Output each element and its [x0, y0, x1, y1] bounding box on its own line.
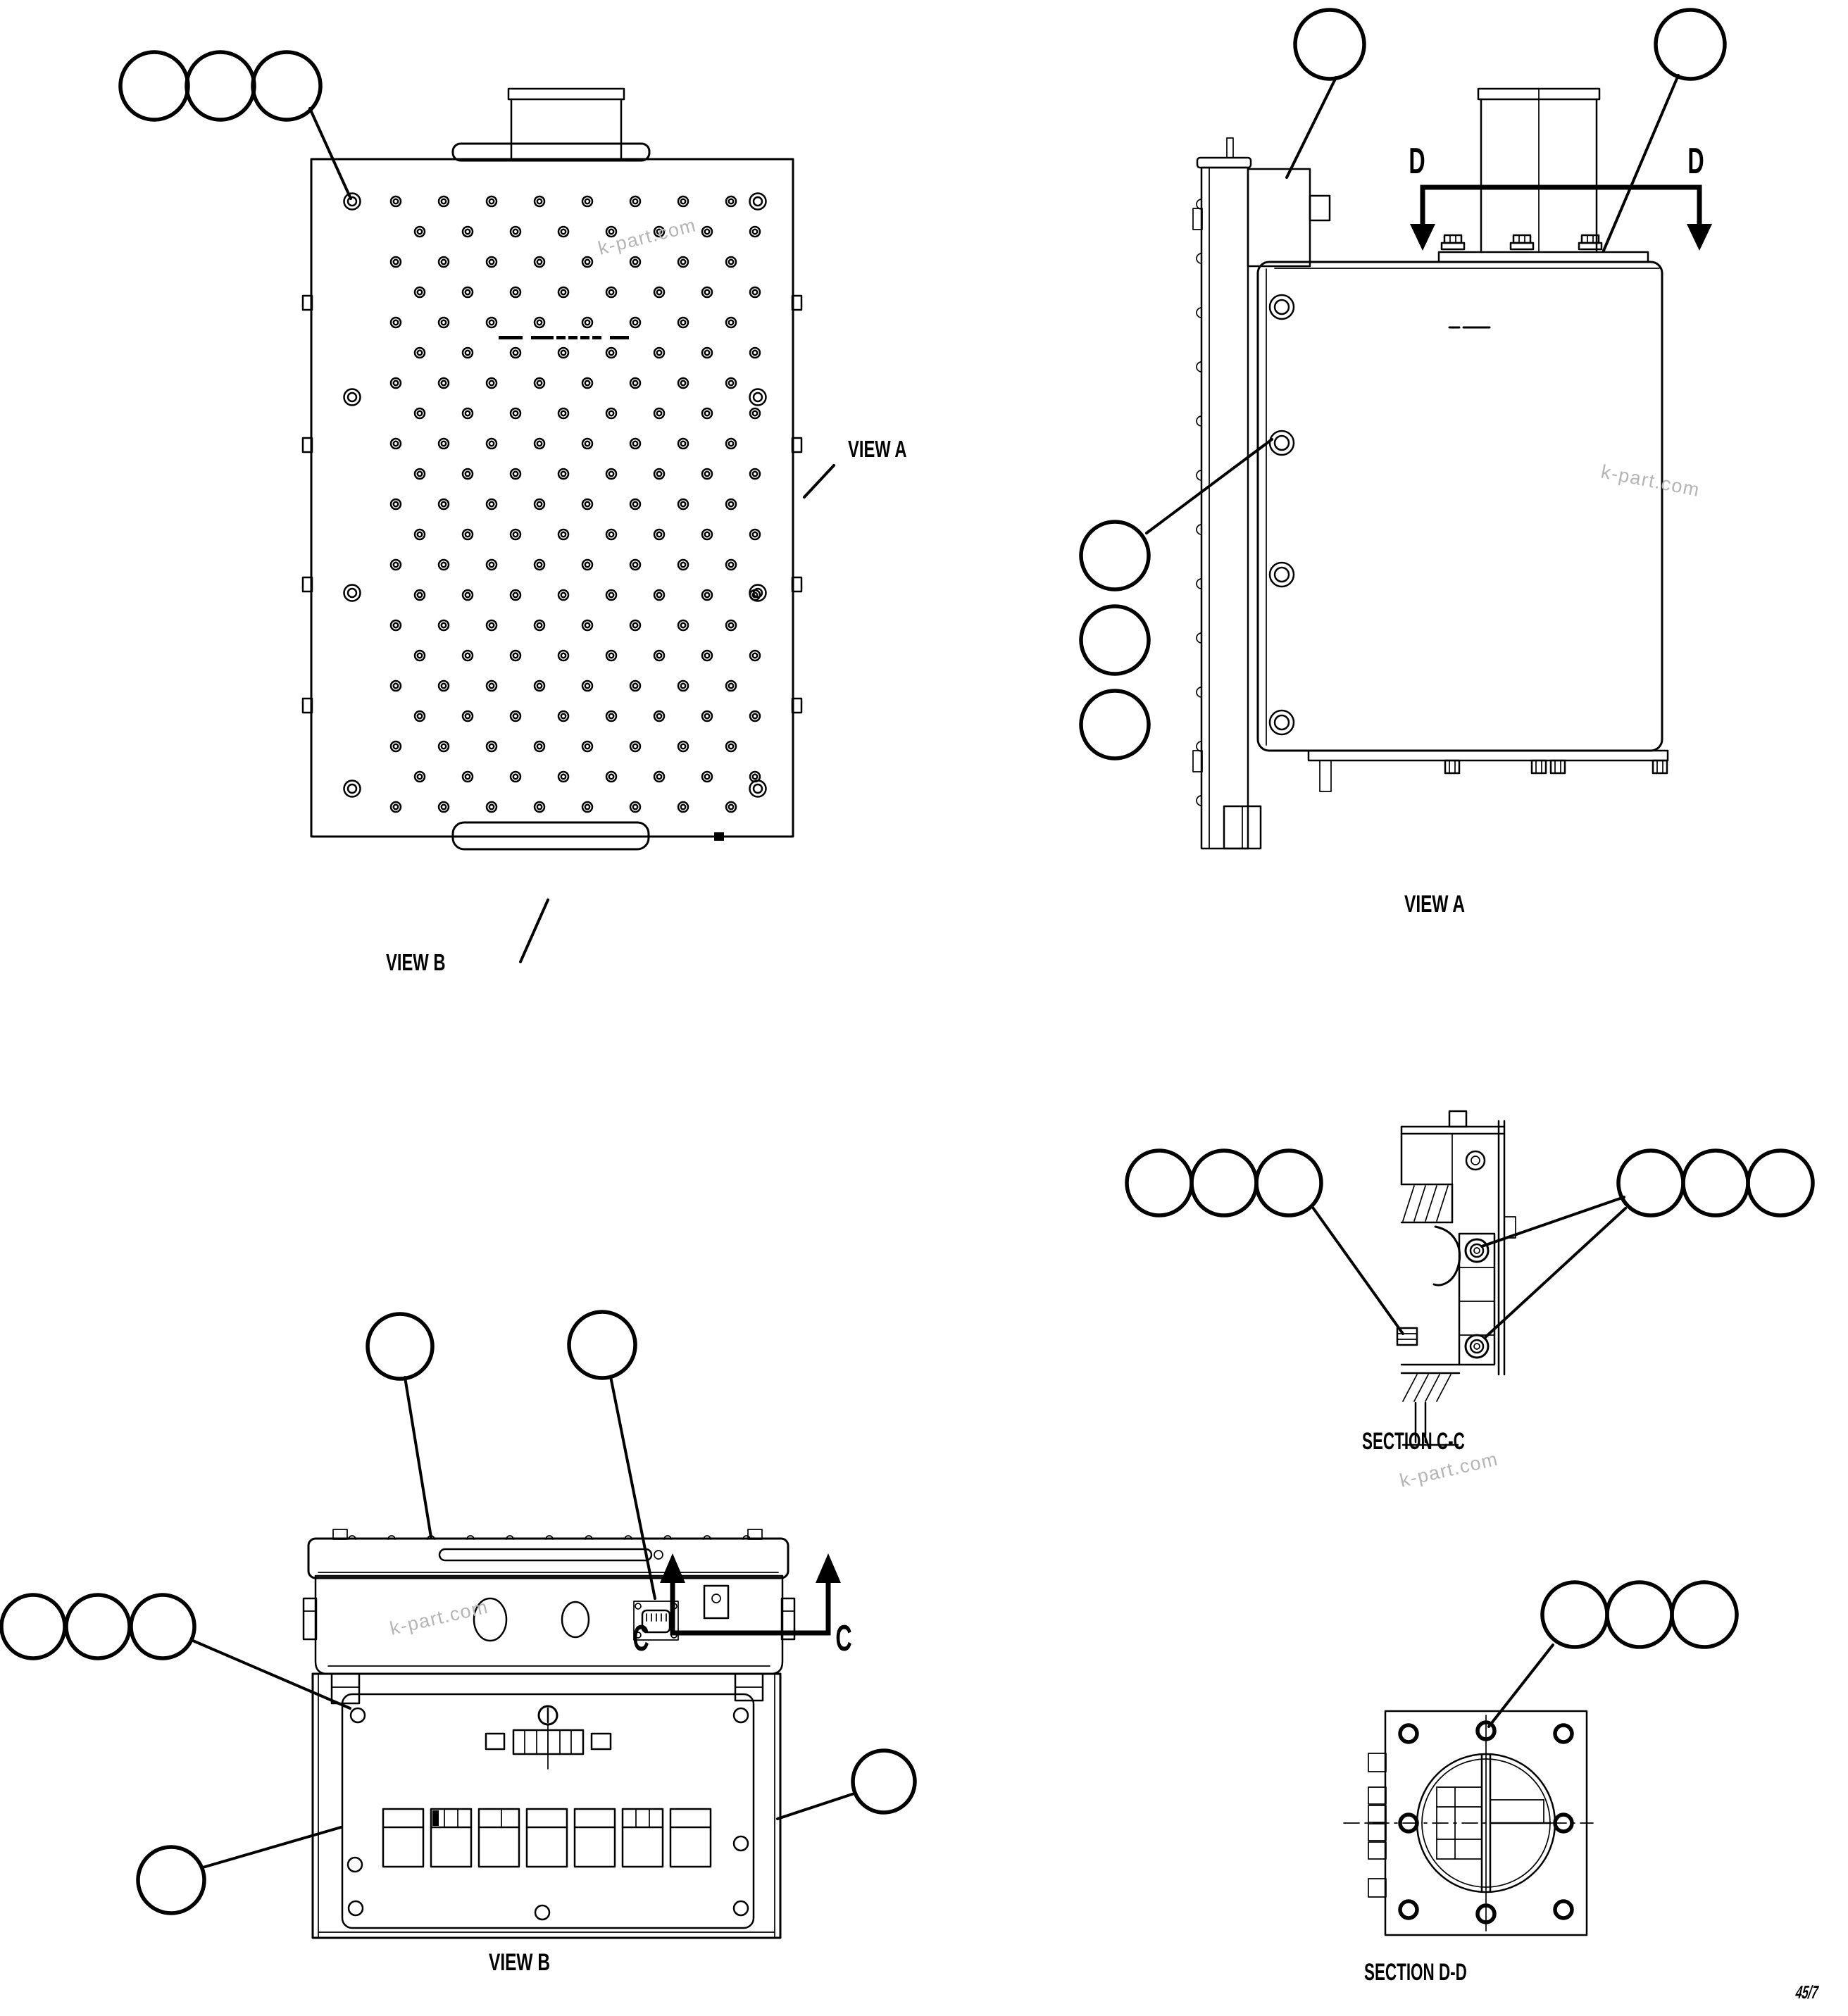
view-b: [304, 1529, 794, 1938]
watermark-text: k-part.com: [388, 1596, 491, 1639]
callout-balloon: [1127, 1151, 1192, 1215]
section-dd-caption: SECTION D-D: [1364, 1959, 1467, 1986]
callout-balloon: [853, 1751, 915, 1812]
box-feet: [1445, 760, 1667, 773]
callout-balloon: [120, 52, 188, 120]
section-dd: SECTION D-D: [1344, 1711, 1593, 1986]
view-b-pointer: VIEW B: [386, 900, 548, 976]
edge-mark: [714, 832, 724, 841]
callout-balloon: [66, 1595, 130, 1658]
callout-leader: [310, 108, 351, 199]
callout-balloon: [1295, 10, 1364, 79]
upper-bracket-tab: [1310, 196, 1330, 220]
callout-balloons: [1, 10, 1813, 1913]
callout-leader: [611, 1377, 655, 1598]
terminal-bolt-upper: [1466, 1239, 1488, 1262]
section-cc-caption: SECTION C-C: [1362, 1428, 1465, 1455]
side-bolts: [1270, 295, 1294, 734]
section-cc-drawing: [1397, 1111, 1516, 1445]
side-latch-left: [304, 1598, 316, 1639]
callout-balloon: [1, 1595, 65, 1658]
top-handle: [453, 144, 649, 161]
lower-box: [313, 1674, 780, 1938]
section-c-cut-marks: C C: [632, 1553, 851, 1659]
view-a-caption: VIEW A: [1404, 891, 1465, 918]
top-strip: [308, 1529, 788, 1578]
callout-balloon: [1683, 1151, 1748, 1215]
mid-panel: [304, 1576, 794, 1703]
watermark-text: k-part.com: [1599, 461, 1702, 501]
hole-oval-small: [562, 1602, 589, 1637]
flange-bolts: [1442, 235, 1602, 249]
section-d-cut-marks: D D: [1409, 141, 1712, 251]
callout-balloon: [1607, 1582, 1672, 1647]
cylinder-flange: [1439, 252, 1648, 262]
foot-left: [332, 1674, 359, 1703]
indicator-left: [486, 1734, 504, 1749]
callout-balloon: [138, 1847, 204, 1913]
breaker-row: [383, 1809, 711, 1867]
section-arrow-d-left: [1410, 224, 1435, 251]
upper-bracket: [1248, 169, 1310, 266]
callout-balloon: [1748, 1151, 1813, 1215]
callout-leader: [1482, 1197, 1624, 1246]
callout-leader: [1311, 1206, 1403, 1334]
section-dd-drawing: [1344, 1711, 1593, 1935]
cylinder: [1439, 89, 1648, 262]
view-a-pointer: VIEW A: [804, 437, 907, 497]
section-arrow-c-left: [660, 1553, 685, 1583]
side-view: [1193, 89, 1668, 849]
cut-letter-d-left: D: [1409, 141, 1425, 182]
page-number: 45/7: [1794, 1981, 1821, 2002]
callout-leader: [203, 1827, 341, 1867]
duct-top: [508, 89, 624, 159]
callout-leader: [405, 1377, 431, 1537]
watermark-text: k-part.com: [596, 214, 699, 259]
view-b-pointer-label: VIEW B: [386, 950, 445, 976]
cut-letter-d-right: D: [1687, 141, 1704, 182]
section-cc: SECTION C-C: [1362, 1111, 1516, 1455]
callout-leader: [1489, 1645, 1553, 1727]
handle-slot: [439, 1549, 651, 1560]
callout-leader: [1287, 77, 1336, 177]
callout-leader: [1604, 75, 1678, 251]
side-panel: [1193, 138, 1261, 849]
callout-balloon: [1081, 606, 1149, 674]
callout-balloon: [187, 52, 254, 120]
callout-balloon: [569, 1312, 635, 1378]
callout-balloon: [1618, 1151, 1683, 1215]
flange-side-tabs: [1368, 1753, 1386, 1897]
blanked-nameplate-dashes: [499, 336, 629, 339]
callout-balloon: [1256, 1151, 1321, 1215]
control-panel: [342, 1694, 754, 1928]
callout-leader: [1485, 1208, 1625, 1338]
plan-view: [303, 89, 801, 849]
callout-balloon: [368, 1314, 432, 1379]
callout-balloon: [1081, 522, 1149, 589]
side-view-box: [1258, 262, 1668, 791]
cut-letter-c-left: C: [632, 1618, 649, 1659]
section-arrow-d-right: [1687, 224, 1712, 251]
callout-balloon: [1192, 1151, 1256, 1215]
section-arrow-c-right: [816, 1553, 841, 1583]
parts-diagram: VIEW A VIEW B: [0, 0, 1848, 2016]
callout-balloon: [131, 1595, 194, 1658]
corner-screws: [344, 194, 766, 797]
indicator-right: [592, 1734, 611, 1749]
callout-balloon: [1656, 10, 1725, 79]
cut-letter-c-right: C: [835, 1618, 851, 1659]
callout-balloon: [253, 52, 320, 120]
view-a-pointer-label: VIEW A: [848, 437, 907, 463]
plan-view-box: [311, 159, 793, 837]
callout-balloon: [1672, 1582, 1737, 1647]
callout-leader: [778, 1793, 854, 1819]
perforation-screw-grid: [391, 196, 760, 812]
small-plate: [704, 1586, 728, 1618]
callout-balloon: [1542, 1582, 1607, 1647]
view-b-caption: VIEW B: [489, 1949, 550, 1976]
callout-balloon: [1081, 691, 1149, 758]
